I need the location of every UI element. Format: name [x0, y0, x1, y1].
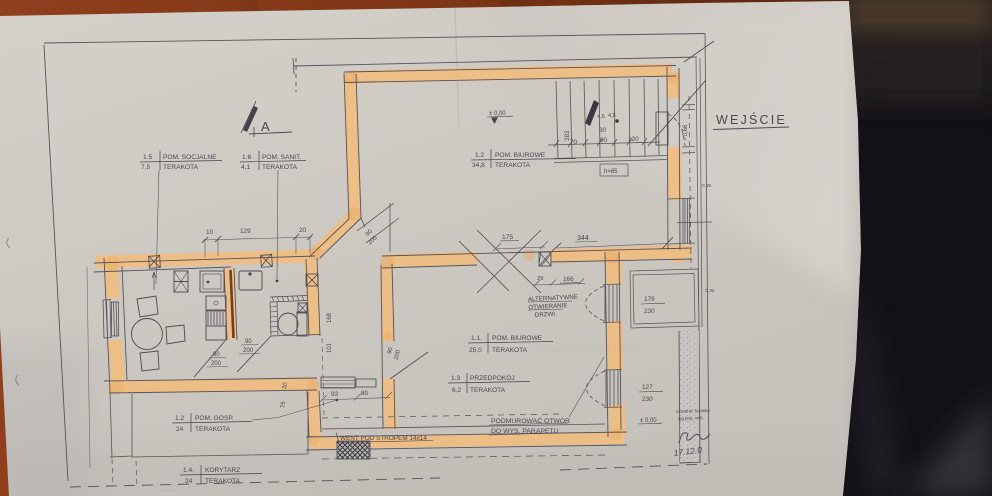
svg-text:± 0,00: ± 0,00 — [489, 111, 506, 117]
svg-text:200: 200 — [211, 361, 222, 367]
svg-text:34,8: 34,8 — [472, 162, 485, 169]
svg-text:1.4.: 1.4. — [183, 467, 194, 474]
svg-text:20: 20 — [299, 227, 307, 234]
svg-text:1.3: 1.3 — [451, 375, 460, 382]
svg-text:C.W.: C.W. — [702, 183, 712, 188]
svg-text:1.1.: 1.1. — [471, 335, 482, 342]
svg-text:230: 230 — [644, 308, 655, 315]
svg-text:POM. SOCJALNE: POM. SOCJALNE — [163, 154, 217, 161]
svg-text:90: 90 — [213, 352, 220, 358]
svg-text:DRZWI: DRZWI — [535, 311, 556, 319]
svg-text:- 0,66: - 0,66 — [683, 124, 689, 140]
svg-text:PRZEDPOKÓJ: PRZEDPOKÓJ — [470, 373, 515, 382]
svg-text:168: 168 — [327, 312, 333, 323]
svg-text:24: 24 — [176, 426, 184, 433]
svg-text:127: 127 — [642, 384, 653, 391]
svg-text:25,0: 25,0 — [469, 347, 482, 354]
svg-text:1.6: 1.6 — [242, 154, 251, 161]
svg-text:KORYTARZ: KORYTARZ — [205, 467, 240, 474]
svg-text:POM. GOSP.: POM. GOSP. — [195, 415, 234, 422]
svg-text:C.W.: C.W. — [705, 288, 715, 293]
svg-text:93: 93 — [331, 391, 339, 398]
svg-text:TERAKOTA: TERAKOTA — [195, 426, 231, 433]
svg-text:175: 175 — [502, 234, 513, 241]
svg-text:80: 80 — [361, 390, 369, 397]
svg-text:TERAKOTA: TERAKOTA — [163, 164, 199, 171]
svg-text:382: 382 — [564, 130, 571, 141]
svg-text:TERMOMODERNIZACJA: TERMOMODERNIZACJA — [537, 344, 641, 354]
svg-text:± 0,00: ± 0,00 — [640, 418, 657, 424]
svg-text:30: 30 — [599, 127, 607, 134]
svg-text:A: A — [261, 119, 270, 134]
svg-text:129: 129 — [240, 228, 251, 235]
svg-text:7,5: 7,5 — [141, 164, 150, 171]
svg-text:29: 29 — [537, 276, 543, 282]
svg-text:POM. BIUROWE: POM. BIUROWE — [495, 152, 546, 159]
svg-text:PODMUROWAĆ OTWÓR: PODMUROWAĆ OTWÓR — [491, 416, 570, 425]
svg-text:POM. BIUROWE: POM. BIUROWE — [492, 335, 543, 342]
svg-text:4,5: 4,5 — [608, 113, 616, 119]
svg-text:166: 166 — [563, 276, 574, 283]
svg-text:TERAKOTA: TERAKOTA — [492, 347, 528, 354]
svg-text:70: 70 — [570, 139, 578, 146]
svg-text:1.2: 1.2 — [175, 415, 184, 422]
svg-text:101: 101 — [327, 342, 333, 353]
svg-text:TERAKOTA: TERAKOTA — [495, 162, 531, 169]
svg-text:90: 90 — [245, 339, 252, 345]
svg-text:1.2: 1.2 — [475, 152, 484, 159]
svg-text:4,1: 4,1 — [241, 164, 250, 171]
svg-text:10: 10 — [206, 229, 214, 236]
svg-text:90: 90 — [600, 137, 608, 144]
svg-text:120: 120 — [628, 136, 639, 143]
svg-text:1.5: 1.5 — [143, 154, 152, 161]
svg-text:75: 75 — [280, 401, 287, 409]
svg-text:POM. SANIT.: POM. SANIT. — [262, 154, 301, 161]
svg-text:344: 344 — [577, 235, 589, 242]
svg-text:WEJŚCIE: WEJŚCIE — [716, 112, 787, 127]
svg-text:24: 24 — [185, 478, 193, 485]
svg-text:TERAKOTA: TERAKOTA — [262, 164, 298, 171]
svg-text:wg proj. wyk.: wg proj. wyk. — [678, 415, 704, 421]
svg-text:179: 179 — [644, 296, 655, 303]
svg-text:230: 230 — [642, 396, 653, 403]
svg-text:h=85: h=85 — [604, 169, 618, 175]
svg-text:200: 200 — [243, 348, 254, 354]
svg-text:4,6: 4,6 — [597, 114, 605, 120]
svg-text:TERAKOTA: TERAKOTA — [205, 478, 241, 485]
svg-text:TERAKOTA: TERAKOTA — [470, 387, 506, 394]
svg-text:6,2: 6,2 — [452, 387, 461, 394]
